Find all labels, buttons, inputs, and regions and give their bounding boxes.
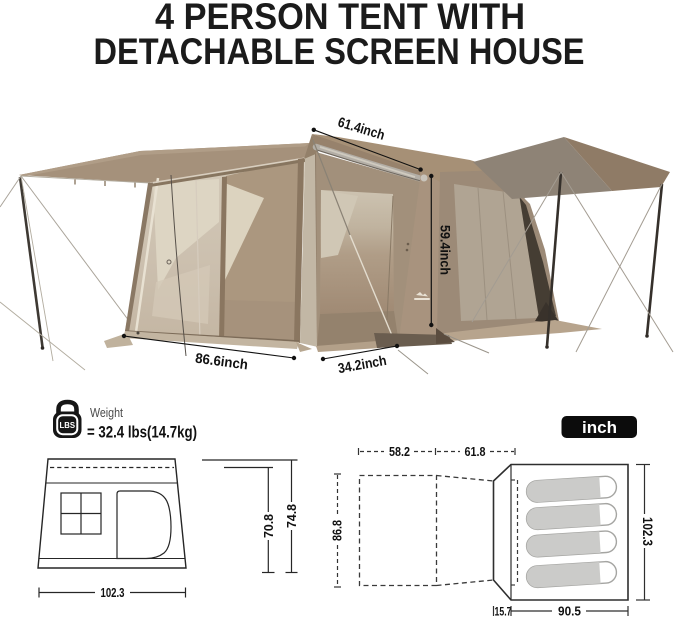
- svg-text:102.3: 102.3: [640, 517, 655, 546]
- svg-text:102.3: 102.3: [101, 586, 125, 600]
- svg-text:inch: inch: [582, 418, 617, 437]
- svg-text:LBS: LBS: [60, 420, 76, 430]
- svg-text:58.2: 58.2: [389, 445, 410, 459]
- svg-text:61.8: 61.8: [465, 445, 486, 459]
- svg-text:15.7: 15.7: [495, 605, 512, 619]
- svg-text:Weight: Weight: [90, 405, 123, 420]
- svg-text:86.8: 86.8: [331, 520, 345, 541]
- svg-text:70.8: 70.8: [262, 514, 276, 538]
- svg-text:DETACHABLE SCREEN HOUSE: DETACHABLE SCREEN HOUSE: [94, 30, 585, 72]
- svg-text:= 32.4 lbs(14.7kg): = 32.4 lbs(14.7kg): [87, 423, 197, 442]
- svg-text:74.8: 74.8: [285, 504, 299, 528]
- svg-text:59.4inch: 59.4inch: [438, 225, 454, 275]
- svg-text:90.5: 90.5: [558, 605, 581, 619]
